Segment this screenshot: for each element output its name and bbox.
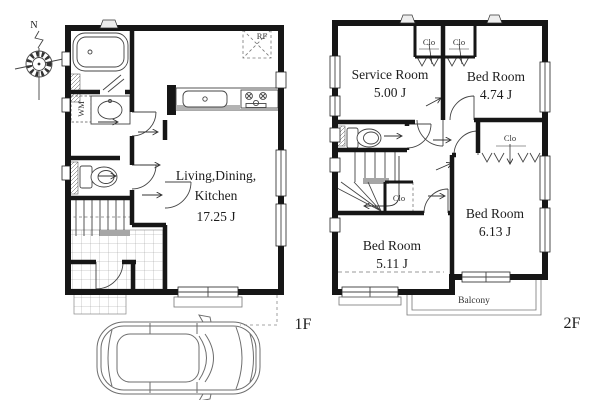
window (276, 204, 286, 246)
ldk-size-label: 17.25 J (196, 209, 235, 224)
car-top-view (97, 315, 260, 400)
kitchen-counter (176, 88, 279, 110)
parking-guide-line (240, 295, 277, 325)
bed-room-3-label: Bed Room (363, 238, 422, 253)
vent (330, 128, 340, 142)
stove (241, 90, 278, 108)
floor1-label: 1F (295, 316, 312, 333)
roof-vent (400, 15, 415, 23)
bathtub (73, 33, 128, 71)
floor-plan-image: N WM (0, 0, 600, 400)
floor2-plan: Balcony (330, 15, 581, 332)
vent (330, 218, 340, 232)
car-mirror (199, 394, 211, 400)
floor2-label: 2F (564, 315, 581, 332)
ldk-label-line1: Living,Dining, (176, 168, 256, 183)
closet-label-2: Clo (453, 37, 465, 47)
ldk-label-line2: Kitchen (195, 188, 238, 203)
balcony-label: Balcony (458, 296, 490, 306)
window (330, 56, 340, 88)
window (174, 287, 242, 307)
window (540, 208, 550, 252)
window (330, 96, 340, 116)
service-room-size: 5.00 J (374, 85, 406, 100)
closet-label-3: Clo (504, 133, 516, 143)
compass-rose: N (15, 20, 63, 100)
compass-north-label: N (30, 20, 37, 31)
vanity-sink (91, 96, 130, 124)
refrigerator-space: RF (243, 30, 271, 58)
bed-room-2-size: 6.13 J (479, 224, 511, 239)
kitchen-sink (183, 91, 227, 107)
bath-counter-hatch (70, 74, 80, 102)
closet-label-1: Clo (423, 37, 435, 47)
roof-vent (487, 15, 502, 23)
car-mirror (199, 315, 211, 322)
bath-folding-door (103, 75, 124, 92)
bed-room-1-label: Bed Room (467, 69, 526, 84)
toilet-2f (337, 126, 381, 148)
vent (62, 98, 70, 112)
window (339, 287, 401, 305)
porch-tile-floor (74, 293, 126, 314)
toilet-1f (70, 162, 117, 194)
roof-vent (100, 20, 118, 28)
window (540, 62, 550, 112)
washing-machine-label: WM (76, 101, 86, 117)
bed-room-1-size: 4.74 J (480, 87, 512, 102)
balcony: Balcony (407, 280, 541, 315)
vent (276, 72, 286, 88)
bed-room-2-label: Bed Room (466, 206, 525, 221)
vent (62, 166, 70, 180)
bed-room-3-size: 5.11 J (376, 256, 408, 271)
vent (62, 52, 70, 66)
closet-label-4: Clo (393, 193, 405, 203)
window (276, 150, 286, 196)
vent (330, 158, 340, 172)
window (540, 156, 550, 200)
floor1-plan: WM (62, 20, 312, 400)
service-room-label: Service Room (352, 67, 429, 82)
refrigerator-label: RF (257, 31, 268, 41)
kitchen-wall-stub (167, 85, 176, 115)
window (462, 272, 510, 282)
